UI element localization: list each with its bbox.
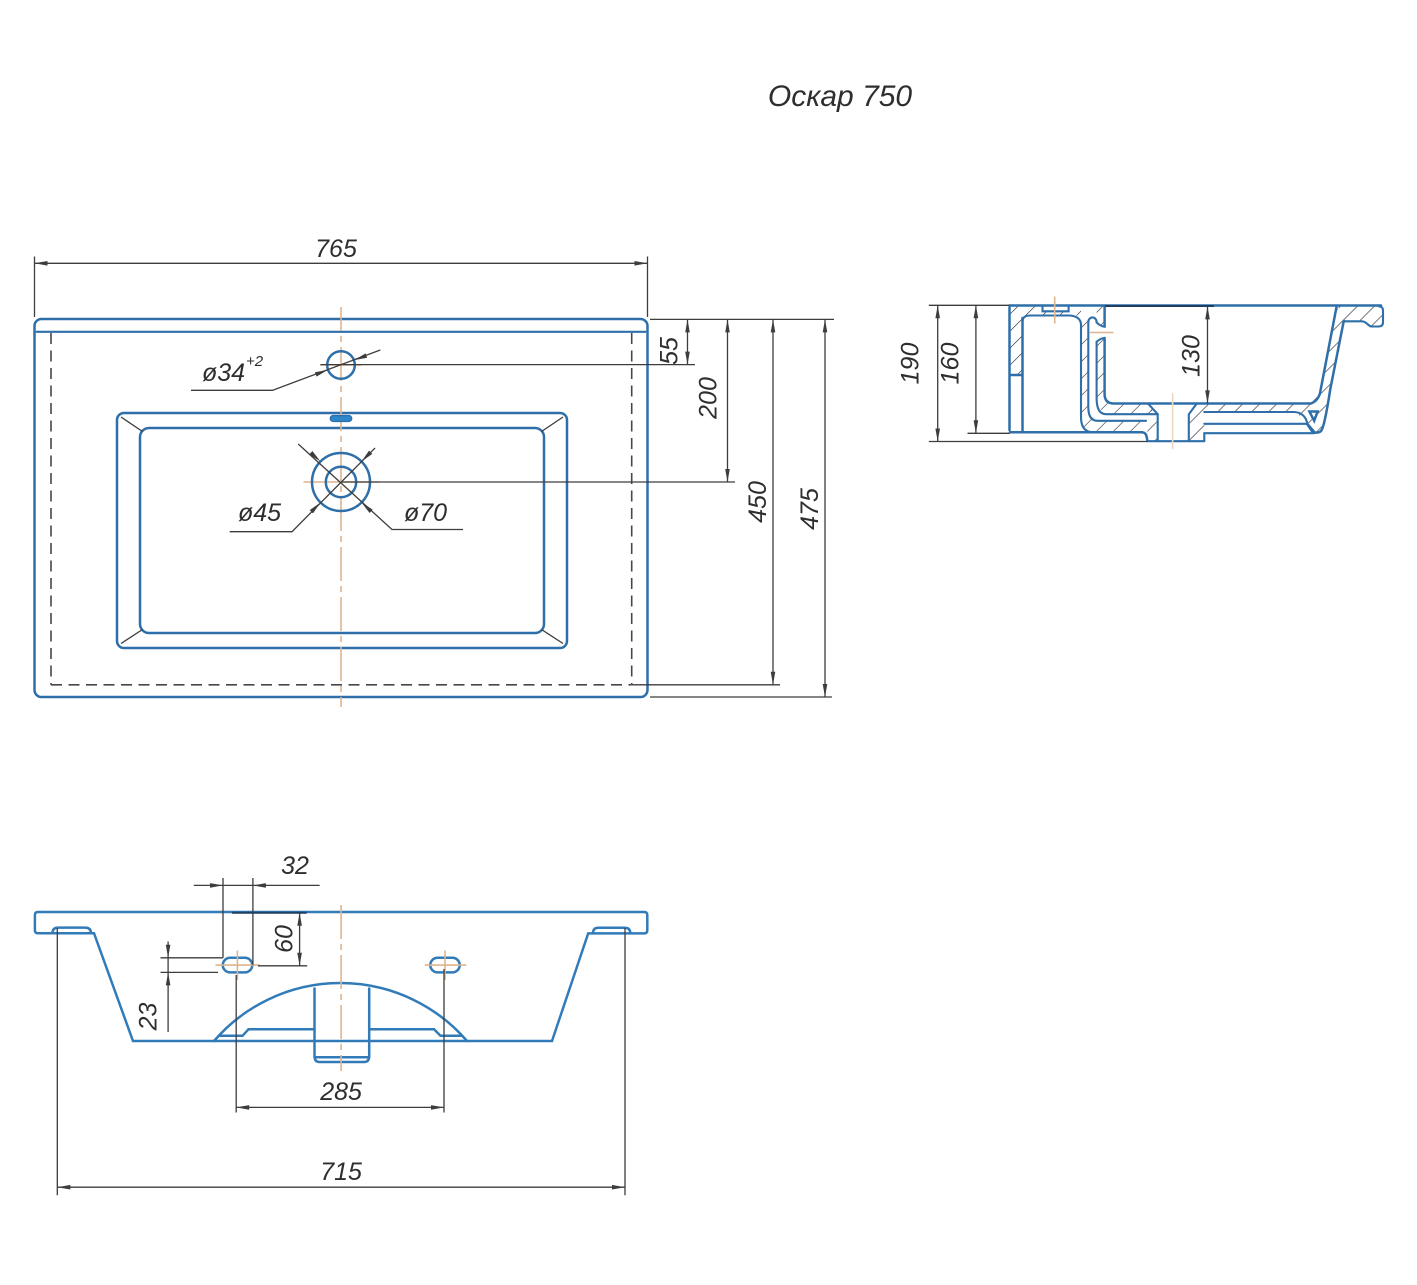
svg-text:ø34: ø34 [202, 359, 245, 387]
svg-text:32: 32 [281, 852, 309, 880]
svg-text:60: 60 [271, 925, 299, 953]
svg-text:160: 160 [937, 343, 965, 385]
svg-text:190: 190 [897, 343, 925, 385]
svg-text:715: 715 [320, 1158, 362, 1186]
svg-text:285: 285 [319, 1078, 362, 1106]
svg-text:765: 765 [315, 235, 357, 263]
svg-text:200: 200 [695, 377, 723, 420]
svg-text:450: 450 [744, 481, 772, 523]
svg-text:475: 475 [796, 488, 824, 530]
svg-text:ø45: ø45 [238, 499, 281, 527]
svg-text:ø70: ø70 [404, 499, 447, 527]
svg-text:+2: +2 [246, 353, 264, 370]
svg-text:130: 130 [1178, 335, 1206, 377]
svg-text:23: 23 [135, 1003, 163, 1032]
svg-text:Оскар 750: Оскар 750 [768, 80, 913, 113]
svg-text:55: 55 [656, 337, 684, 365]
